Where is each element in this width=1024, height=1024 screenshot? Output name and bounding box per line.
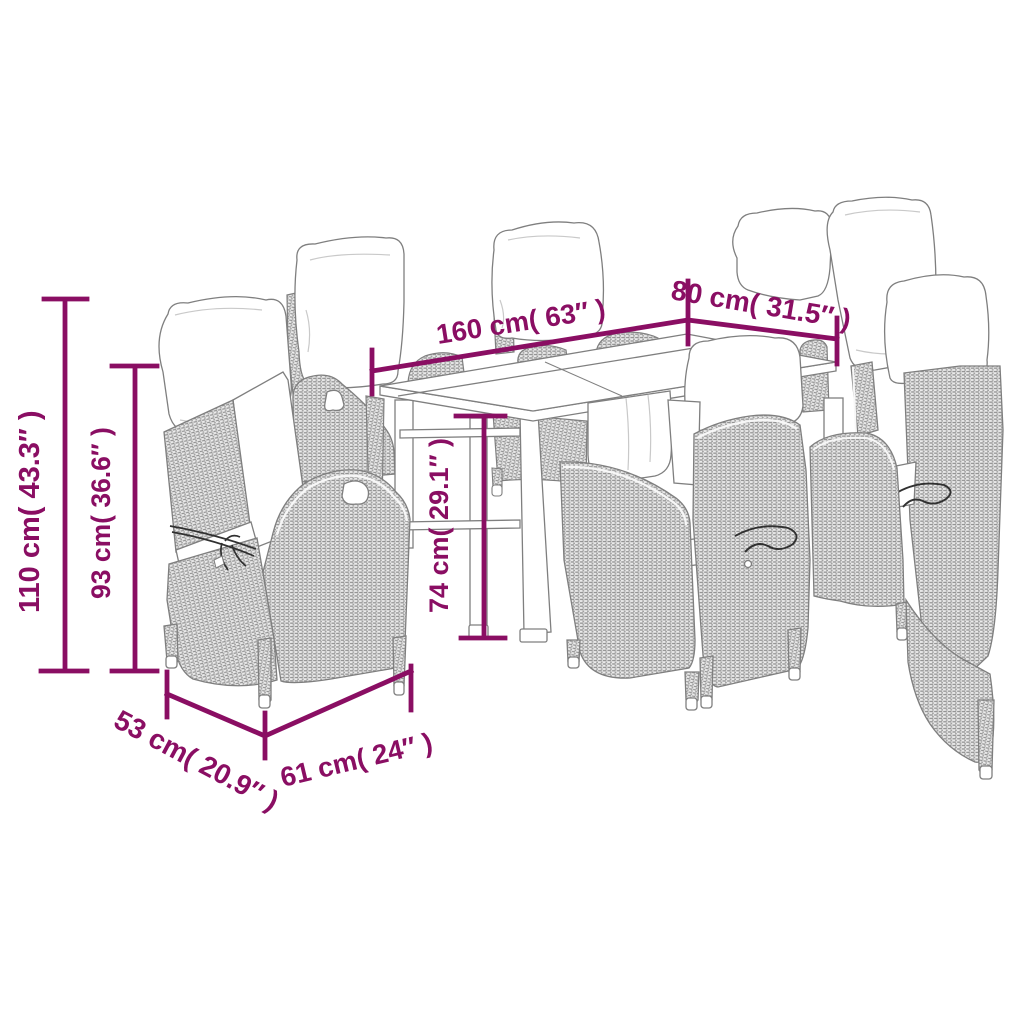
svg-text:110 cm( 43.3″ ): 110 cm( 43.3″ ): [14, 410, 46, 613]
svg-text:93 cm( 36.6″ ): 93 cm( 36.6″ ): [86, 427, 116, 599]
svg-text:74 cm( 29.1″ ): 74 cm( 29.1″ ): [424, 438, 454, 613]
